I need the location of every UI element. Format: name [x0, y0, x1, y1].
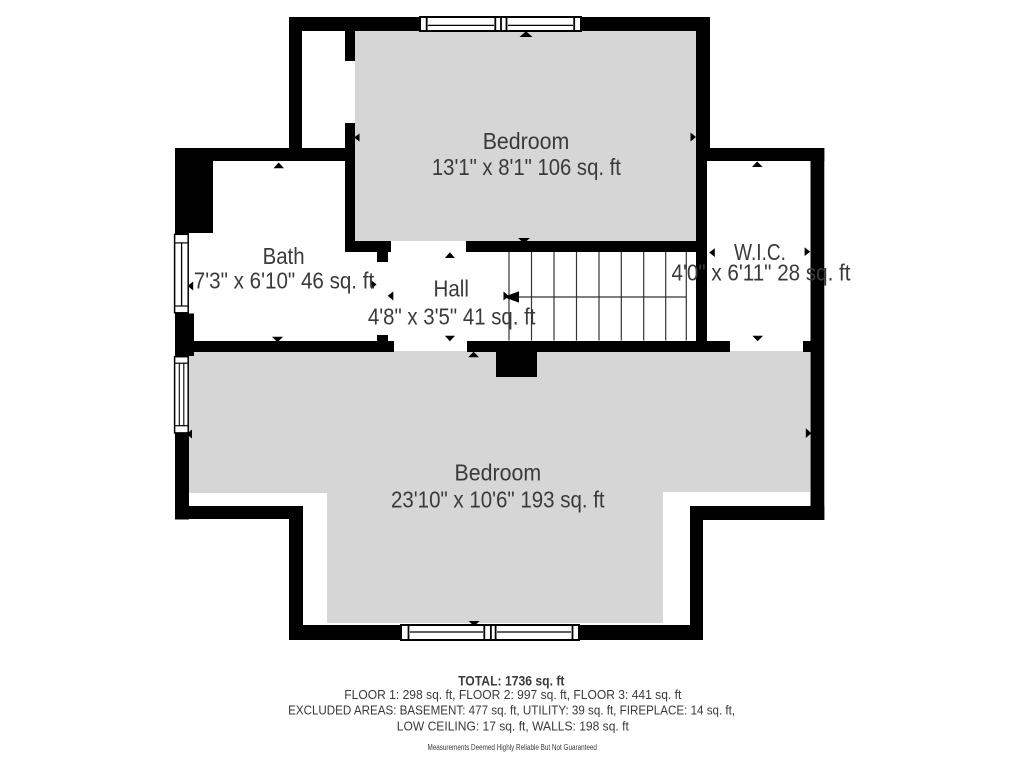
- svg-text:Bedroom: Bedroom: [455, 460, 542, 486]
- svg-text:TOTAL: 1736 sq. ft: TOTAL: 1736 sq. ft: [458, 673, 565, 688]
- svg-text:LOW CEILING: 17 sq. ft, WALLS:: LOW CEILING: 17 sq. ft, WALLS: 198 sq. f…: [397, 720, 629, 734]
- svg-text:FLOOR 1: 298 sq. ft, FLOOR 2:: FLOOR 1: 298 sq. ft, FLOOR 2: 997 sq. ft…: [344, 688, 682, 702]
- svg-text:Measurements Deemed Highly Rel: Measurements Deemed Highly Reliable But …: [427, 743, 597, 752]
- svg-text:Bedroom: Bedroom: [483, 128, 570, 154]
- svg-text:Hall: Hall: [434, 276, 469, 302]
- svg-text:13'1" x 8'1" 106 sq. ft: 13'1" x 8'1" 106 sq. ft: [432, 154, 622, 180]
- svg-text:7'3" x 6'10" 46 sq. ft: 7'3" x 6'10" 46 sq. ft: [194, 268, 375, 294]
- svg-text:EXCLUDED AREAS: BASEMENT: 477: EXCLUDED AREAS: BASEMENT: 477 sq. ft, UT…: [288, 704, 735, 718]
- svg-text:4'0" x 6'11" 28 sq. ft: 4'0" x 6'11" 28 sq. ft: [672, 260, 852, 286]
- svg-text:4'8" x 3'5" 41 sq. ft: 4'8" x 3'5" 41 sq. ft: [368, 303, 536, 329]
- svg-text:Bath: Bath: [263, 243, 305, 269]
- svg-text:23'10" x 10'6" 193 sq. ft: 23'10" x 10'6" 193 sq. ft: [391, 486, 605, 512]
